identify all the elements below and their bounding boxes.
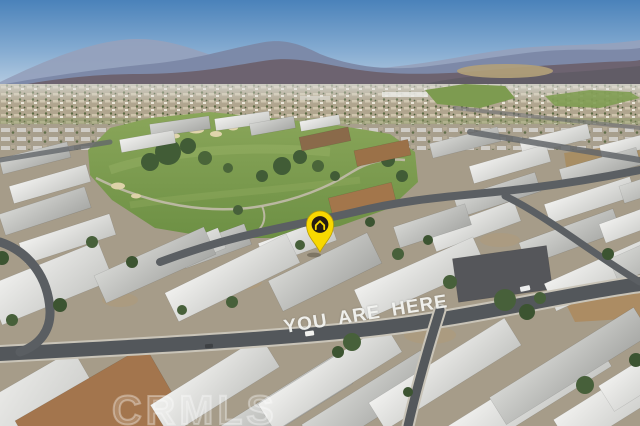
aerial-scene [0, 0, 640, 426]
aerial-photo: YOU ARE HERE CRMLS [0, 0, 640, 426]
pin-inner-circle [312, 216, 329, 233]
crmls-watermark: CRMLS [112, 390, 278, 426]
